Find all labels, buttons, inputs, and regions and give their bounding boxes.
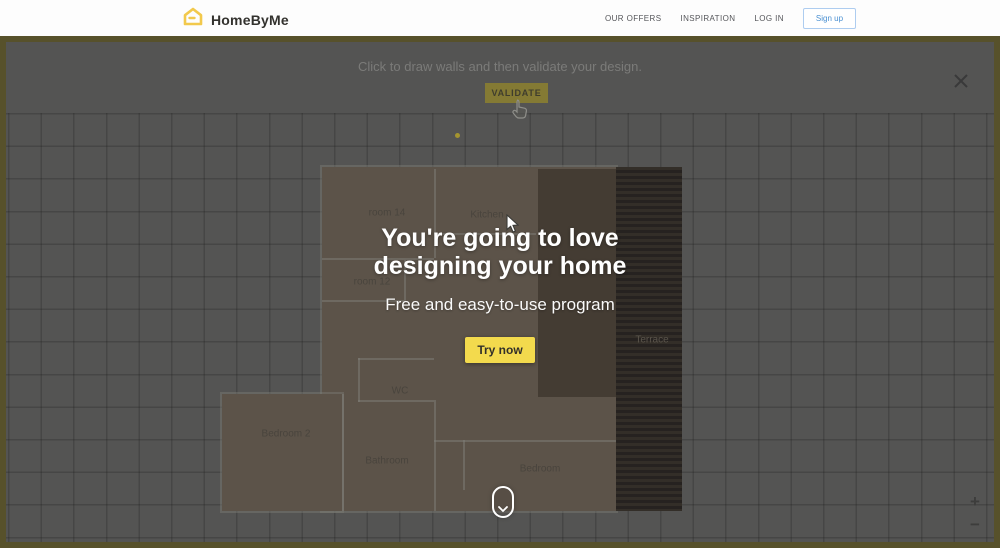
try-now-button[interactable]: Try now xyxy=(465,337,535,363)
nav-log-in[interactable]: LOG IN xyxy=(754,14,784,23)
zoom-out-button[interactable]: − xyxy=(966,516,984,534)
room-label: room 14 xyxy=(369,208,406,219)
wall xyxy=(434,440,616,442)
brand-name: HomeByMe xyxy=(211,12,289,28)
brand-logo[interactable]: HomeByMe xyxy=(182,6,289,33)
wall xyxy=(463,440,465,490)
header-nav: OUR OFFERS INSPIRATION LOG IN Sign up xyxy=(605,0,856,36)
sign-up-button[interactable]: Sign up xyxy=(803,8,856,29)
wall xyxy=(434,402,436,511)
promo-title: You're going to love designing your home xyxy=(6,224,994,280)
room-label: Bathroom xyxy=(365,456,408,467)
hand-pointer-cursor xyxy=(511,98,529,125)
close-icon[interactable] xyxy=(950,71,972,93)
wall xyxy=(342,394,344,511)
room-label: WC xyxy=(392,386,409,397)
plan-left-block xyxy=(222,394,342,511)
top-navbar: HomeByMe OUR OFFERS INSPIRATION LOG IN S… xyxy=(0,0,1000,36)
room-label: Bedroom 2 xyxy=(262,429,311,440)
floorplan-editor-canvas[interactable]: Click to draw walls and then validate yo… xyxy=(0,36,1000,548)
mouse-scroll-icon xyxy=(492,486,514,518)
wall xyxy=(358,400,436,402)
wall xyxy=(358,358,360,402)
zoom-in-button[interactable]: + xyxy=(966,493,984,511)
draw-instruction-text: Click to draw walls and then validate yo… xyxy=(6,59,994,74)
homebyme-house-icon xyxy=(182,6,204,33)
room-label: Bedroom xyxy=(520,464,561,475)
room-label: Kitchen xyxy=(470,210,503,221)
nav-our-offers[interactable]: OUR OFFERS xyxy=(605,14,661,23)
promo-overlay: You're going to love designing your home… xyxy=(6,224,994,363)
draw-point-indicator xyxy=(455,133,460,138)
promo-subtitle: Free and easy-to-use program xyxy=(6,295,994,315)
nav-inspiration[interactable]: INSPIRATION xyxy=(680,14,735,23)
